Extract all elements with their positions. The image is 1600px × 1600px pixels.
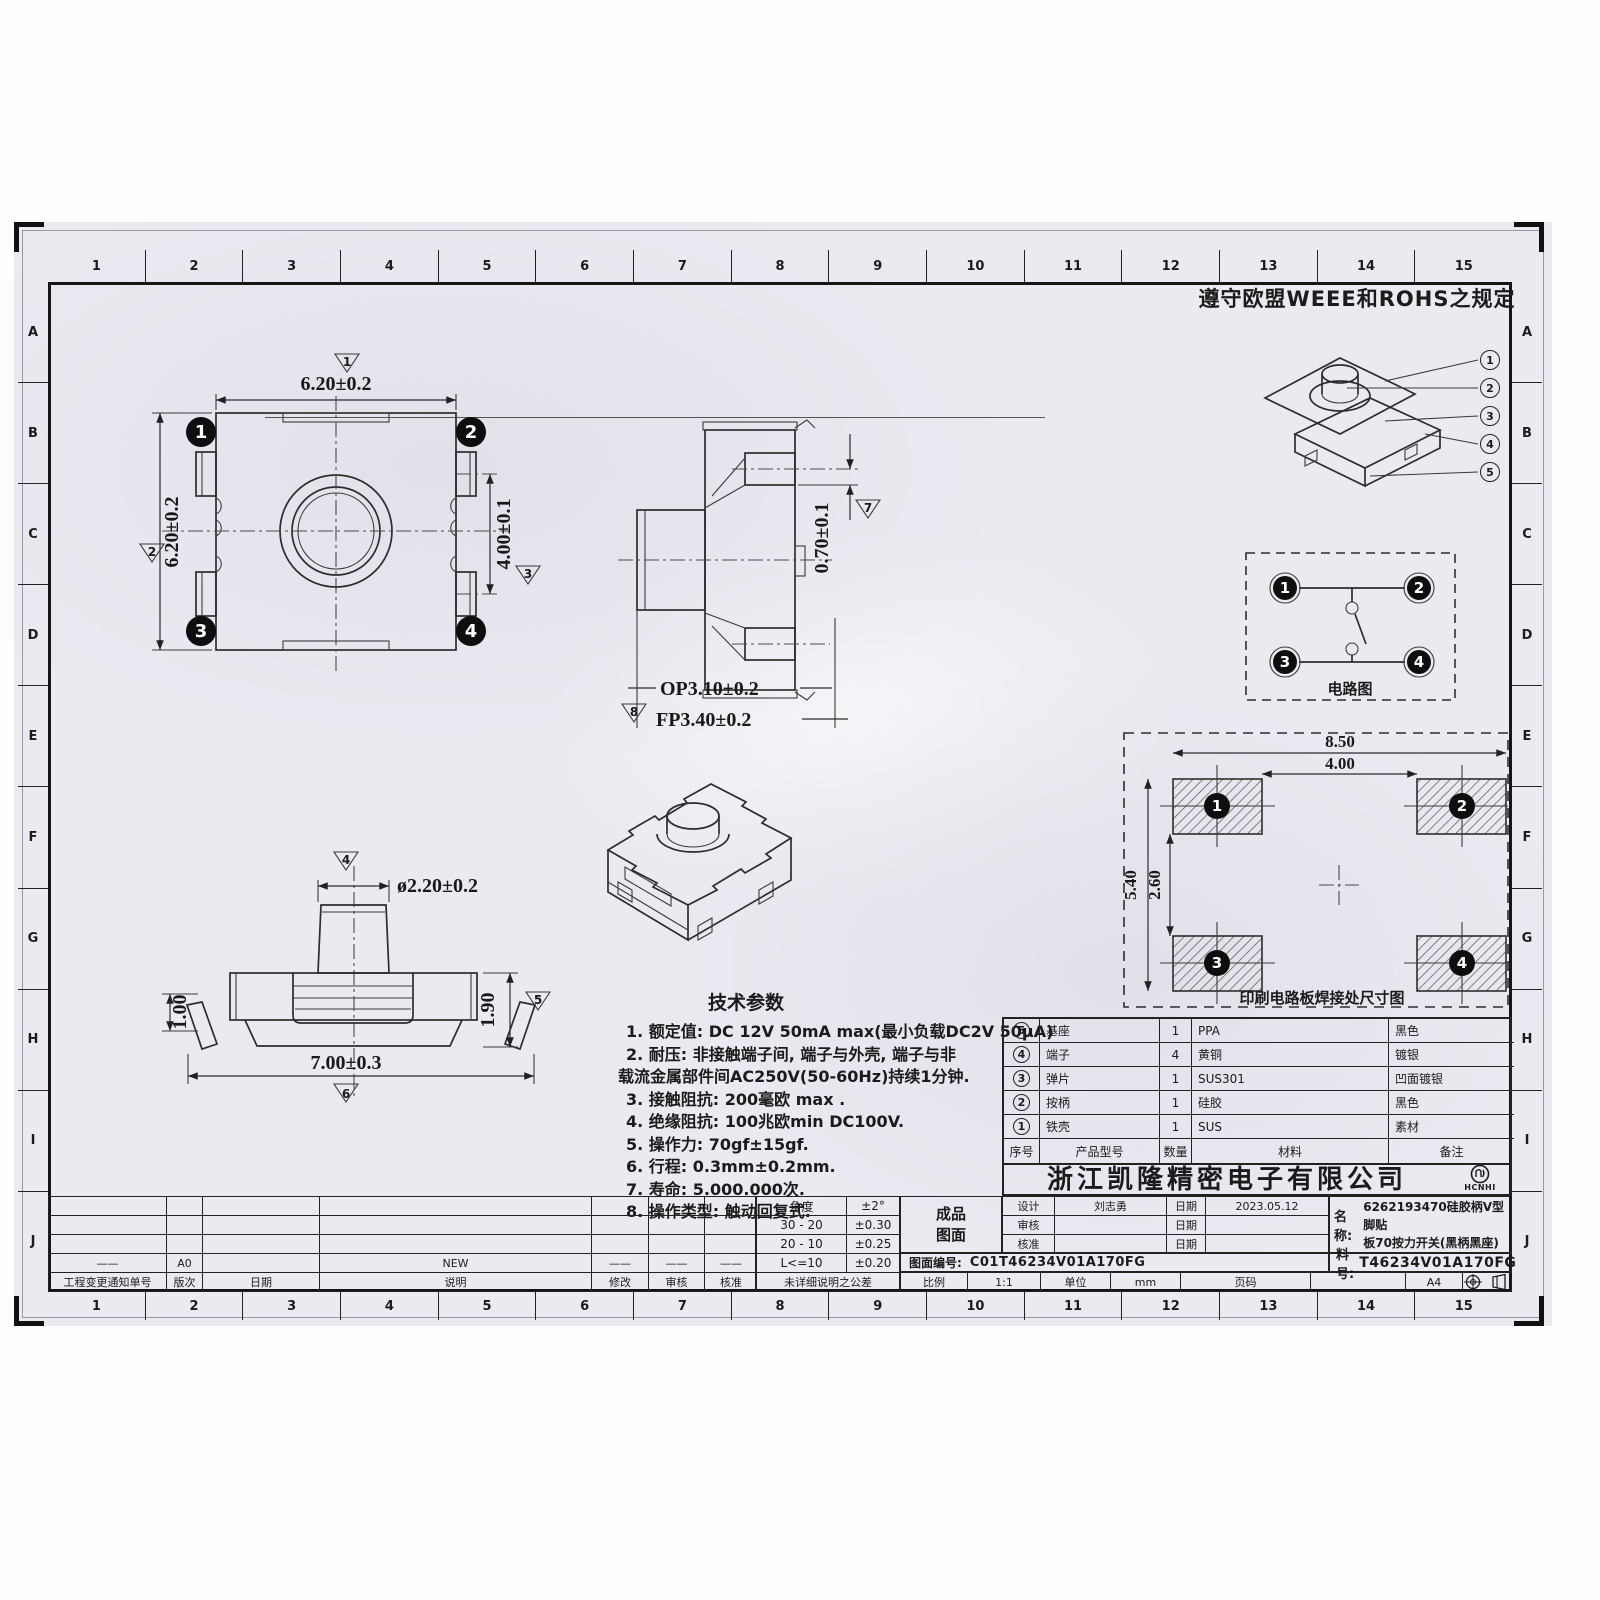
flag-8: 8: [630, 705, 638, 719]
pcb-dim-outer-h: 5.40: [1121, 870, 1140, 900]
crop-mark-icon: [14, 222, 44, 252]
bom-qty: 1: [1160, 1091, 1192, 1115]
revision-header: 版次: [167, 1273, 203, 1291]
bom-qty: 1: [1160, 1067, 1192, 1091]
ruler-label: B: [1512, 383, 1542, 484]
bom-qty: 1: [1160, 1115, 1192, 1139]
product-drawing-line1: 成品: [936, 1204, 966, 1225]
bom-remark: 素材: [1389, 1115, 1514, 1139]
revision-header: 说明: [320, 1273, 592, 1291]
approve-date: [1206, 1235, 1328, 1252]
ruler-label: A: [18, 282, 48, 383]
ruler-label: J: [18, 1192, 48, 1292]
part-name-block: 名称: 6262193470硅胶柄V型脚贴 板70按力开关(黑柄黑座): [1329, 1196, 1512, 1253]
top-view-drawing: 6.20±0.2 1 1 2 3 4 6.20±0.2 2 4.00±0.1 3: [138, 338, 548, 703]
ruler-label: 14: [1318, 250, 1416, 282]
bom-qty: 4: [1160, 1043, 1192, 1067]
pcb-layout-drawing: 8.50 4.00 5.40 2.60 1 2 3 4 印刷电路板焊接处尺寸图: [1122, 731, 1512, 1011]
ruler-label: 12: [1122, 250, 1220, 282]
ruler-label: 4: [341, 1292, 439, 1320]
ruler-label: H: [18, 990, 48, 1091]
bom-remark: 凹面镀银: [1389, 1067, 1514, 1091]
revision-cell: [320, 1235, 592, 1254]
page-label: 页码: [1181, 1273, 1311, 1291]
callout-4: 4: [1480, 434, 1500, 454]
ruler-label: G: [18, 889, 48, 990]
tolerance-value: ±2°: [847, 1197, 899, 1216]
bom-material: 黄铜: [1192, 1043, 1389, 1067]
tolerance-range: 角度: [757, 1197, 847, 1216]
revision-date: [203, 1254, 320, 1273]
ruler-label: 10: [927, 250, 1025, 282]
date-label: 日期: [1167, 1197, 1206, 1216]
revision-cell: [592, 1235, 649, 1254]
dim-pin-span: 4.00±0.1: [493, 499, 515, 570]
bom-no: 3: [1004, 1067, 1040, 1091]
pad-2: 2: [1457, 797, 1467, 815]
bom-name: 端子: [1040, 1043, 1160, 1067]
projection-symbol-cell: [1463, 1273, 1511, 1291]
dim-side-height: 6.20±0.2: [161, 497, 183, 568]
designer-name: 刘志勇: [1055, 1197, 1167, 1216]
revision-rev: A0: [167, 1254, 203, 1273]
flag-7: 7: [864, 501, 872, 515]
tolerance-value: ±0.25: [847, 1235, 899, 1254]
revision-cell: [49, 1197, 167, 1216]
bom-no: 1: [1004, 1115, 1040, 1139]
side-view-drawing: 0.70±0.1 7 OP3.10±0.2 8 FP3.40±0.2: [600, 388, 908, 743]
ruler-label: D: [18, 585, 48, 686]
tech-param-line: 1. 额定值: DC 12V 50mA max(最小负载DC2V 50μA): [610, 1021, 1012, 1044]
ruler-label: 6: [536, 250, 634, 282]
ruler-label: 3: [243, 1292, 341, 1320]
bom-name: 按柄: [1040, 1091, 1160, 1115]
approver-name: [1055, 1235, 1167, 1252]
ruler-label: 1: [48, 250, 146, 282]
ruler-bottom: 123456789101112131415: [48, 1292, 1512, 1320]
ruler-label: E: [18, 686, 48, 787]
scale-value: 1:1: [968, 1273, 1041, 1291]
tolerance-footer: 未详细说明之公差: [757, 1273, 899, 1291]
circuit-pin-4: 4: [1414, 653, 1424, 671]
ruler-label: B: [18, 383, 48, 484]
drawing-no-row: 图面编号: C01T46234V01A170FG: [900, 1253, 1329, 1272]
dim-fp: FP3.40±0.2: [656, 709, 751, 731]
tolerance-table: 角度 ±2° 30 - 20 ±0.30 20 - 10 ±0.25 L<=10…: [756, 1196, 900, 1292]
revision-header: 修改: [592, 1273, 649, 1291]
ruler-label: H: [1512, 990, 1542, 1091]
ruler-label: 13: [1220, 1292, 1318, 1320]
bom-remark: 黑色: [1389, 1019, 1514, 1043]
paper-size: A4: [1406, 1273, 1463, 1291]
dim-terminal-thickness: 0.70±0.1: [811, 503, 833, 574]
pcb-title: 印刷电路板焊接处尺寸图: [1239, 989, 1404, 1007]
pcb-dim-inner-h: 2.60: [1145, 870, 1164, 900]
tolerance-value: ±0.30: [847, 1216, 899, 1235]
flag-1: 1: [343, 355, 351, 369]
bom-no: 5: [1004, 1019, 1040, 1043]
pcb-dim-inner-w: 4.00: [1325, 754, 1355, 773]
dim-lead-height: 1.00: [169, 995, 191, 1030]
ruler-label: 11: [1025, 250, 1123, 282]
revision-cell: [167, 1197, 203, 1216]
revision-header: 工程变更通知单号: [49, 1273, 167, 1291]
revision-cell: [203, 1216, 320, 1235]
bom-no: 4: [1004, 1043, 1040, 1067]
revision-cell: [649, 1235, 705, 1254]
design-label: 设计: [1003, 1197, 1055, 1216]
tolerance-range: 30 - 20: [757, 1216, 847, 1235]
ruler-label: J: [1512, 1192, 1542, 1292]
pin-number: 1: [195, 422, 208, 443]
bom-table: 5 基座 1 PPA 黑色 4 端子 4 黄铜 镀银 3 弹片 1 SUS301…: [1002, 1017, 1512, 1165]
name-label: 名称:: [1334, 1206, 1361, 1244]
ruler-label: 3: [243, 250, 341, 282]
drawing-no-value: C01T46234V01A170FG: [970, 1255, 1146, 1270]
ruler-label: 4: [341, 250, 439, 282]
ruler-label: 1: [48, 1292, 146, 1320]
pin-number: 3: [195, 621, 208, 642]
callout-5: 5: [1480, 462, 1500, 482]
flag-2: 2: [148, 545, 156, 559]
revision-cell: [705, 1235, 757, 1254]
ruler-label: 7: [634, 250, 732, 282]
compliance-note: 遵守欧盟WEEE和ROHS之规定: [1192, 284, 1522, 312]
revision-cell: [203, 1235, 320, 1254]
revision-cell: [705, 1197, 757, 1216]
part-name-line2: 板70按力开关(黑柄黑座): [1363, 1234, 1507, 1252]
ruler-label: C: [18, 484, 48, 585]
revision-cell: [592, 1197, 649, 1216]
tech-param-line: 4. 绝缘阻抗: 100兆欧min DC100V.: [610, 1111, 1012, 1134]
callout-1: 1: [1480, 350, 1500, 370]
pad-3: 3: [1212, 954, 1222, 972]
dim-body-height: 1.90: [477, 993, 499, 1028]
ruler-label: 15: [1415, 250, 1512, 282]
crop-mark-icon: [1514, 1296, 1544, 1326]
flag-4: 4: [342, 853, 350, 867]
part-no-row: 料号: T46234V01A170FG: [1329, 1253, 1512, 1272]
ruler-right: ABCDEFGHIJ: [1512, 282, 1542, 1292]
revision-header: 核准: [705, 1273, 757, 1291]
unit-label: 单位: [1041, 1273, 1111, 1291]
ruler-label: G: [1512, 889, 1542, 990]
company-logo: HCNHI: [1450, 1164, 1510, 1192]
callout-2: 2: [1480, 378, 1500, 398]
revision-dash: ——: [592, 1254, 649, 1273]
company-bar: 浙江凯隆精密电子有限公司 HCNHI: [1002, 1161, 1512, 1196]
ruler-label: 8: [732, 1292, 830, 1320]
crop-mark-icon: [1514, 222, 1544, 252]
revision-dash: ——: [705, 1254, 757, 1273]
design-date: 2023.05.12: [1206, 1197, 1328, 1216]
unit-value: mm: [1111, 1273, 1181, 1291]
ruler-label: 5: [439, 250, 537, 282]
bom-no-circle: 3: [1013, 1070, 1030, 1087]
bom-no-circle: 4: [1013, 1046, 1030, 1063]
callout-3: 3: [1480, 406, 1500, 426]
pad-1: 1: [1212, 797, 1222, 815]
tech-param-line: 5. 操作力: 70gf±15gf.: [610, 1134, 1012, 1157]
circuit-pin-2: 2: [1414, 579, 1424, 597]
page-value: [1311, 1273, 1406, 1291]
revision-cell: [49, 1235, 167, 1254]
tech-params-title: 技术参数: [610, 988, 1012, 1015]
dim-top-width: 6.20±0.2: [301, 373, 372, 395]
tolerance-range: L<=10: [757, 1254, 847, 1273]
isometric-view-drawing: [563, 742, 811, 1000]
ruler-label: 15: [1415, 1292, 1512, 1320]
ruler-label: E: [1512, 686, 1542, 787]
ruler-label: 6: [536, 1292, 634, 1320]
ruler-label: D: [1512, 585, 1542, 686]
circuit-pin-1: 1: [1280, 579, 1290, 597]
footer-row: 比例 1:1 单位 mm 页码 A4: [900, 1272, 1512, 1292]
revision-cell: [649, 1197, 705, 1216]
company-logo-text: HCNHI: [1464, 1184, 1495, 1192]
revision-cell: [649, 1216, 705, 1235]
tech-param-line: 6. 行程: 0.3mm±0.2mm.: [610, 1156, 1012, 1179]
ruler-label: 11: [1025, 1292, 1123, 1320]
review-label: 审核: [1003, 1216, 1055, 1235]
ruler-left: ABCDEFGHIJ: [18, 282, 48, 1292]
bom-no: 2: [1004, 1091, 1040, 1115]
revision-cell: [203, 1197, 320, 1216]
bom-name: 基座: [1040, 1019, 1160, 1043]
front-view-drawing: 4 ø2.20±0.2 1.00 1.90 5 7.00±0.3 6: [150, 828, 570, 1133]
revision-header: 日期: [203, 1273, 320, 1291]
pad-4: 4: [1457, 954, 1467, 972]
ruler-label: 8: [732, 250, 830, 282]
signoff-block: 设计 刘志勇 日期 2023.05.12 审核 日期 核准 日期: [1002, 1196, 1329, 1253]
revision-dash: ——: [649, 1254, 705, 1273]
pcb-dim-outer-w: 8.50: [1325, 732, 1355, 751]
bom-material: SUS: [1192, 1115, 1389, 1139]
tech-param-line: 3. 接触阻抗: 200毫欧 max .: [610, 1089, 1012, 1112]
ruler-label: 13: [1220, 250, 1318, 282]
ruler-label: 9: [829, 250, 927, 282]
ruler-label: 12: [1122, 1292, 1220, 1320]
bom-material: SUS301: [1192, 1067, 1389, 1091]
bom-no-circle: 5: [1013, 1022, 1030, 1039]
bom-name: 铁壳: [1040, 1115, 1160, 1139]
ruler-label: 5: [439, 1292, 537, 1320]
company-name: 浙江凯隆精密电子有限公司: [1004, 1159, 1450, 1196]
ruler-label: 10: [927, 1292, 1025, 1320]
pin-number: 4: [465, 621, 478, 642]
revision-cell: [320, 1197, 592, 1216]
flag-6: 6: [342, 1087, 350, 1101]
circuit-pin-3: 3: [1280, 653, 1290, 671]
date-label: 日期: [1167, 1235, 1206, 1252]
revision-cell: [49, 1216, 167, 1235]
pin-number: 2: [465, 422, 478, 443]
circuit-title: 电路图: [1327, 680, 1372, 698]
flag-3: 3: [524, 567, 532, 581]
bom-remark: 镀银: [1389, 1043, 1514, 1067]
tolerance-range: 20 - 10: [757, 1235, 847, 1254]
product-drawing-cell: 成品 图面: [900, 1196, 1002, 1253]
revision-header: 审核: [649, 1273, 705, 1291]
review-date: [1206, 1216, 1328, 1235]
part-name-line1: 6262193470硅胶柄V型脚贴: [1363, 1198, 1507, 1234]
tech-params: 技术参数 1. 额定值: DC 12V 50mA max(最小负载DC2V 50…: [610, 988, 1012, 1224]
date-label: 日期: [1167, 1216, 1206, 1235]
tech-param-line: 2. 耐压: 非接触端子间, 端子与外壳, 端子与非: [610, 1044, 1012, 1067]
tech-param-line: 载流金属部件间AC250V(50-60Hz)持续1分钟.: [610, 1066, 1012, 1089]
company-logo-icon: [1470, 1164, 1490, 1184]
ruler-label: 14: [1318, 1292, 1416, 1320]
revision-cell: [705, 1216, 757, 1235]
tolerance-value: ±0.20: [847, 1254, 899, 1273]
crop-mark-icon: [14, 1296, 44, 1326]
revision-dash: ——: [49, 1254, 167, 1273]
ruler-top: 123456789101112131415: [48, 250, 1512, 282]
ruler-label: 2: [146, 250, 244, 282]
circuit-diagram: 1 2 3 4 电路图: [1243, 550, 1458, 708]
revision-table: —— A0 NEW —— —— —— 工程变更通知单号 版次 日期 说明 修改 …: [48, 1196, 756, 1292]
projection-symbol-icon: [1463, 1273, 1511, 1291]
bom-remark: 黑色: [1389, 1091, 1514, 1115]
ruler-label: I: [18, 1091, 48, 1192]
product-drawing-line2: 图面: [936, 1225, 966, 1246]
flag-5: 5: [534, 993, 542, 1007]
dim-op: OP3.10±0.2: [660, 678, 759, 700]
bom-no-circle: 2: [1013, 1094, 1030, 1111]
ruler-label: F: [18, 787, 48, 888]
part-no-value: T46234V01A170FG: [1359, 1255, 1516, 1271]
bom-qty: 1: [1160, 1019, 1192, 1043]
revision-cell: [167, 1235, 203, 1254]
dim-button-dia: ø2.20±0.2: [397, 875, 478, 897]
revision-desc: NEW: [320, 1254, 592, 1273]
reviewer-name: [1055, 1216, 1167, 1235]
ruler-label: 9: [829, 1292, 927, 1320]
ruler-label: F: [1512, 787, 1542, 888]
bom-material: PPA: [1192, 1019, 1389, 1043]
bom-name: 弹片: [1040, 1067, 1160, 1091]
revision-cell: [592, 1216, 649, 1235]
revision-cell: [320, 1216, 592, 1235]
scale-label: 比例: [901, 1273, 968, 1291]
bom-no-circle: 1: [1013, 1118, 1030, 1135]
bom-material: 硅胶: [1192, 1091, 1389, 1115]
exploded-view-drawing: [1235, 326, 1485, 494]
dim-total-width: 7.00±0.3: [311, 1052, 382, 1074]
ruler-label: C: [1512, 484, 1542, 585]
ruler-label: 2: [146, 1292, 244, 1320]
ruler-label: 7: [634, 1292, 732, 1320]
approve-label: 核准: [1003, 1235, 1055, 1252]
revision-cell: [167, 1216, 203, 1235]
drawing-no-label: 图面编号:: [909, 1254, 962, 1271]
ruler-label: I: [1512, 1091, 1542, 1192]
